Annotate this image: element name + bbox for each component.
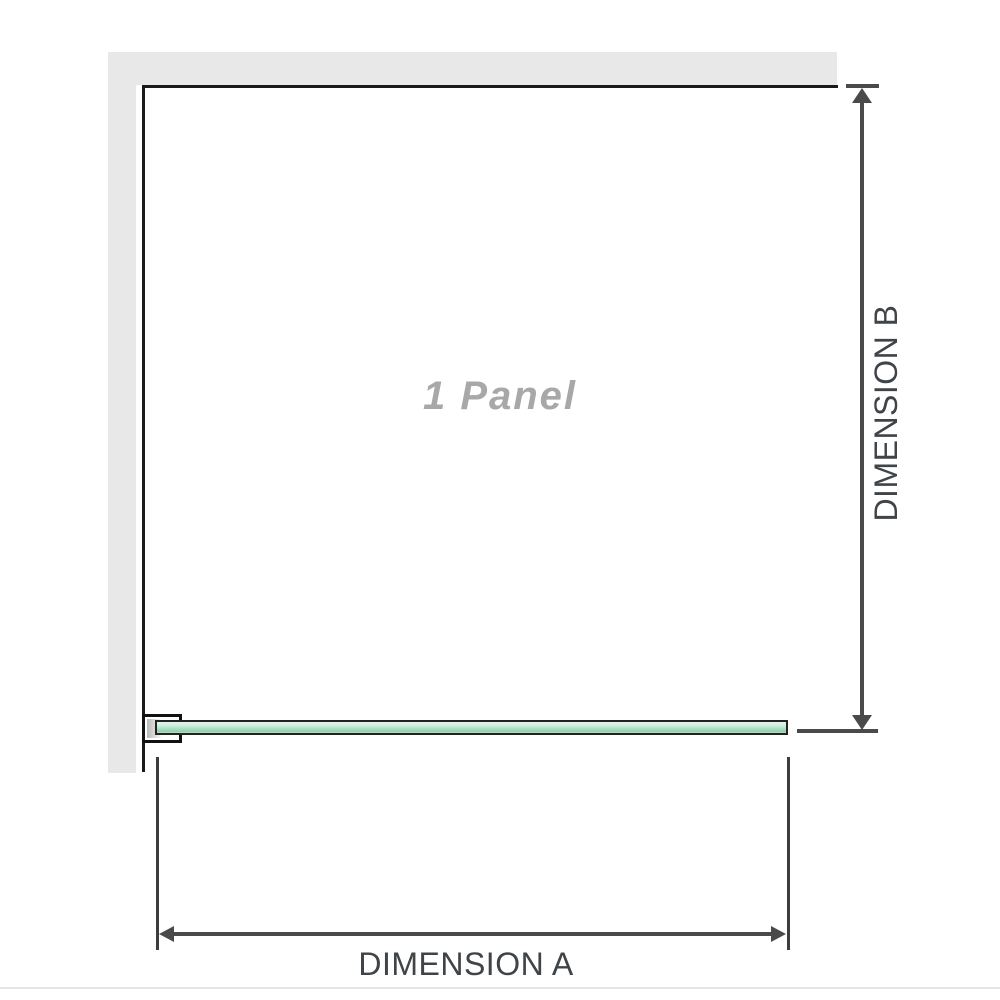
wall-left-segment [108, 52, 136, 773]
panel-dimension-diagram: 1 Panel DIMENSION B DIMENSION A [0, 0, 1000, 1000]
panel-outline-top [142, 85, 838, 88]
dimension-b-label: DIMENSION B [869, 283, 903, 543]
arrow-left-icon [159, 926, 174, 942]
panel-outline-left [142, 85, 145, 772]
dimension-a-extension-left [156, 757, 159, 950]
dimension-a-line [171, 932, 774, 936]
arrow-down-icon [852, 715, 872, 730]
glass-panel [155, 720, 788, 735]
panel-count-label: 1 Panel [340, 372, 660, 420]
dimension-b-line [860, 95, 864, 725]
arrow-up-icon [852, 88, 872, 103]
wall-top-segment [108, 52, 837, 85]
dimension-a-extension-right [787, 757, 790, 950]
dimension-a-label: DIMENSION A [316, 946, 616, 982]
arrow-right-icon [771, 926, 786, 942]
page-bottom-rule [0, 987, 1000, 989]
